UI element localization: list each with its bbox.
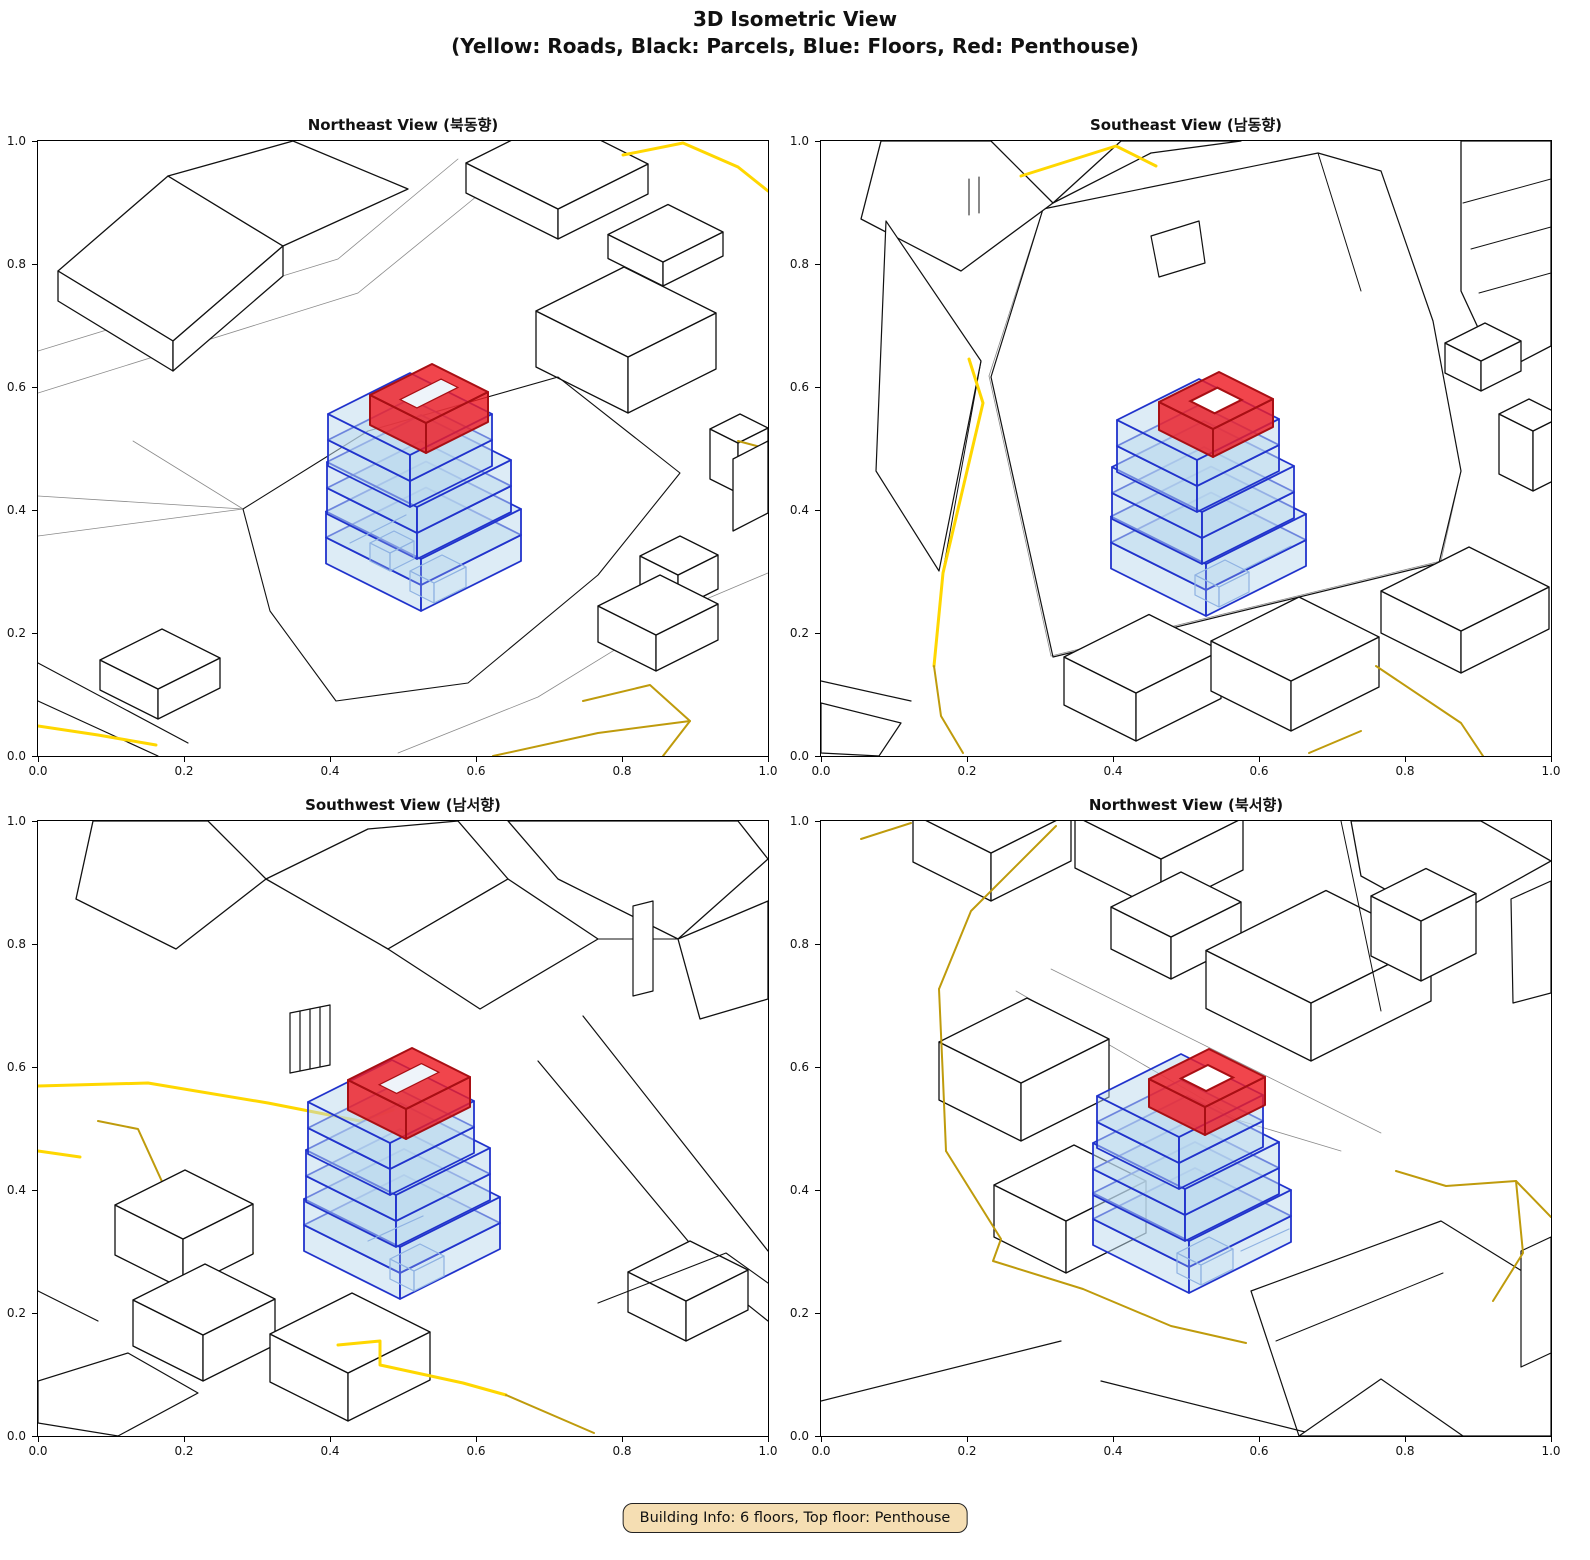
x-tick-label: 0.2 [174,1444,193,1458]
x-tick-label: 0.2 [174,764,193,778]
y-tick-label: 0.2 [7,1306,26,1320]
road-line [1396,1171,1551,1217]
y-tick-mark [32,944,37,945]
subplot-title-southeast: Southeast View (남동향) [821,114,1551,135]
y-tick-mark [32,1190,37,1191]
x-tick-mark [622,1437,623,1442]
subplot-northeast: Northeast View (북동향) 0.00.20.40.60.81.0 … [37,140,769,757]
x-tick-mark [476,757,477,762]
figure-title: 3D Isometric View [0,6,1590,33]
y-tick-label: 0.6 [790,380,809,394]
x-tick-label: 0.0 [811,1444,830,1458]
y-tick-label: 0.0 [7,1429,26,1443]
y-tick-mark [815,1067,820,1068]
subplot-title-northwest: Northwest View (북서향) [821,794,1551,815]
x-tick-mark [38,1437,39,1442]
y-tick-label: 0.0 [790,749,809,763]
x-tick-mark [821,1437,822,1442]
x-tick-mark [821,757,822,762]
road-line [1309,731,1361,753]
parcel-building [633,901,653,996]
y-axis-ticks: 0.00.20.40.60.81.0 [779,821,821,1436]
y-axis-ticks: 0.00.20.40.60.81.0 [779,141,821,756]
y-tick-mark [815,1436,820,1437]
parcel-building [876,221,981,571]
road-line [38,726,156,745]
y-tick-label: 0.0 [790,1429,809,1443]
building-info-label: Building Info: 6 floors, Top floor: Pent… [640,1510,951,1526]
y-tick-label: 0.2 [790,1306,809,1320]
x-tick-mark [38,757,39,762]
y-tick-mark [32,141,37,142]
x-tick-label: 1.0 [758,1444,777,1458]
parcel-building [1521,1237,1551,1367]
y-tick-mark [815,1190,820,1191]
road-line [861,823,911,839]
parcel-line [133,441,243,509]
road-line [493,721,690,756]
y-tick-label: 1.0 [790,814,809,828]
x-tick-label: 0.8 [1395,764,1414,778]
y-tick-label: 0.2 [790,626,809,640]
parcel-line [38,1291,98,1321]
y-tick-label: 0.0 [7,749,26,763]
y-tick-mark [815,387,820,388]
parcel-line [583,1016,768,1251]
y-tick-mark [815,633,820,634]
y-tick-label: 0.8 [790,257,809,271]
y-tick-label: 0.4 [7,1183,26,1197]
x-tick-mark [184,1437,185,1442]
x-axis-ticks: 0.00.20.40.60.81.0 [38,756,768,782]
y-tick-label: 0.4 [790,1183,809,1197]
x-tick-label: 0.2 [957,764,976,778]
y-axis-ticks: 0.00.20.40.60.81.0 [0,821,38,1436]
y-tick-mark [32,510,37,511]
subplot-southeast: Southeast View (남동향) 0.00.20.40.60.81.0 … [820,140,1552,757]
x-tick-label: 0.0 [28,1444,47,1458]
x-tick-label: 0.6 [466,1444,485,1458]
y-tick-label: 1.0 [790,134,809,148]
parcel-line [821,1341,1061,1401]
y-tick-label: 0.8 [7,937,26,951]
x-tick-label: 0.6 [1249,764,1268,778]
y-tick-mark [32,1313,37,1314]
road-line [583,685,690,756]
subplot-title-northeast: Northeast View (북동향) [38,114,768,135]
y-tick-mark [815,264,820,265]
x-tick-label: 0.6 [466,764,485,778]
y-tick-mark [32,264,37,265]
road-line [38,1151,80,1157]
x-axis-ticks: 0.00.20.40.60.81.0 [821,1436,1551,1462]
figure-subtitle: (Yellow: Roads, Black: Parcels, Blue: Fl… [0,33,1590,60]
scene-canvas-northwest [821,821,1551,1436]
building-info-box: Building Info: 6 floors, Top floor: Pent… [623,1503,968,1533]
y-tick-label: 1.0 [7,134,26,148]
x-tick-label: 1.0 [1541,1444,1560,1458]
x-tick-label: 0.4 [320,1444,339,1458]
y-tick-label: 0.6 [790,1060,809,1074]
y-tick-label: 0.8 [790,937,809,951]
x-tick-mark [1405,1437,1406,1442]
y-tick-label: 1.0 [7,814,26,828]
parcel-line [1318,153,1361,291]
x-tick-mark [330,1437,331,1442]
road-line [934,666,963,753]
y-tick-mark [815,821,820,822]
x-tick-label: 0.0 [811,764,830,778]
x-tick-label: 0.8 [612,1444,631,1458]
x-tick-mark [1259,757,1260,762]
y-tick-mark [815,944,820,945]
x-tick-mark [768,1437,769,1442]
scene-canvas-northeast [38,141,768,756]
y-tick-mark [815,510,820,511]
x-tick-label: 0.4 [320,764,339,778]
x-tick-mark [1259,1437,1260,1442]
x-tick-mark [1113,1437,1114,1442]
x-tick-label: 0.8 [1395,1444,1414,1458]
x-tick-label: 1.0 [1541,764,1560,778]
scene-canvas-southeast [821,141,1551,756]
x-tick-label: 0.2 [957,1444,976,1458]
x-tick-label: 0.8 [612,764,631,778]
x-tick-label: 0.4 [1103,764,1122,778]
parcel-building [1151,221,1205,277]
parcel-building [1511,881,1551,1003]
y-tick-mark [32,633,37,634]
y-tick-mark [815,1313,820,1314]
road-line [1376,666,1483,756]
parcel-line [38,496,243,536]
subplot-southwest: Southwest View (남서향) 0.00.20.40.60.81.0 … [37,820,769,1437]
y-tick-mark [32,387,37,388]
x-axis-ticks: 0.00.20.40.60.81.0 [38,1436,768,1462]
y-tick-label: 0.6 [7,1060,26,1074]
x-tick-mark [1113,757,1114,762]
x-tick-mark [967,1437,968,1442]
x-tick-mark [1405,757,1406,762]
y-tick-mark [32,756,37,757]
parcel-building [76,821,266,949]
x-tick-mark [967,757,968,762]
y-tick-label: 0.4 [790,503,809,517]
y-axis-ticks: 0.00.20.40.60.81.0 [0,141,38,756]
parcel-line [989,376,1051,656]
road-line [506,1395,594,1433]
x-tick-mark [1551,1437,1552,1442]
subplot-northwest: Northwest View (북서향) 0.00.20.40.60.81.0 … [820,820,1552,1437]
y-tick-mark [32,821,37,822]
x-tick-label: 0.6 [1249,1444,1268,1458]
y-tick-label: 0.6 [7,380,26,394]
parcel-building [1053,141,1241,203]
y-tick-label: 0.8 [7,257,26,271]
parcel-line [821,681,911,701]
figure-header: 3D Isometric View (Yellow: Roads, Black:… [0,6,1590,60]
parcel-line [398,573,768,753]
x-tick-mark [622,757,623,762]
x-axis-ticks: 0.00.20.40.60.81.0 [821,756,1551,782]
y-tick-mark [32,1067,37,1068]
x-tick-mark [184,757,185,762]
x-tick-mark [476,1437,477,1442]
subplot-title-southwest: Southwest View (남서향) [38,794,768,815]
y-tick-label: 0.4 [7,503,26,517]
x-tick-label: 0.4 [1103,1444,1122,1458]
y-tick-label: 0.2 [7,626,26,640]
x-tick-label: 1.0 [758,764,777,778]
x-tick-label: 0.0 [28,764,47,778]
parcel-building [821,703,901,756]
y-tick-mark [32,1436,37,1437]
x-tick-mark [330,757,331,762]
x-tick-mark [1551,757,1552,762]
x-tick-mark [768,757,769,762]
y-tick-mark [815,141,820,142]
y-tick-mark [815,756,820,757]
scene-canvas-southwest [38,821,768,1436]
